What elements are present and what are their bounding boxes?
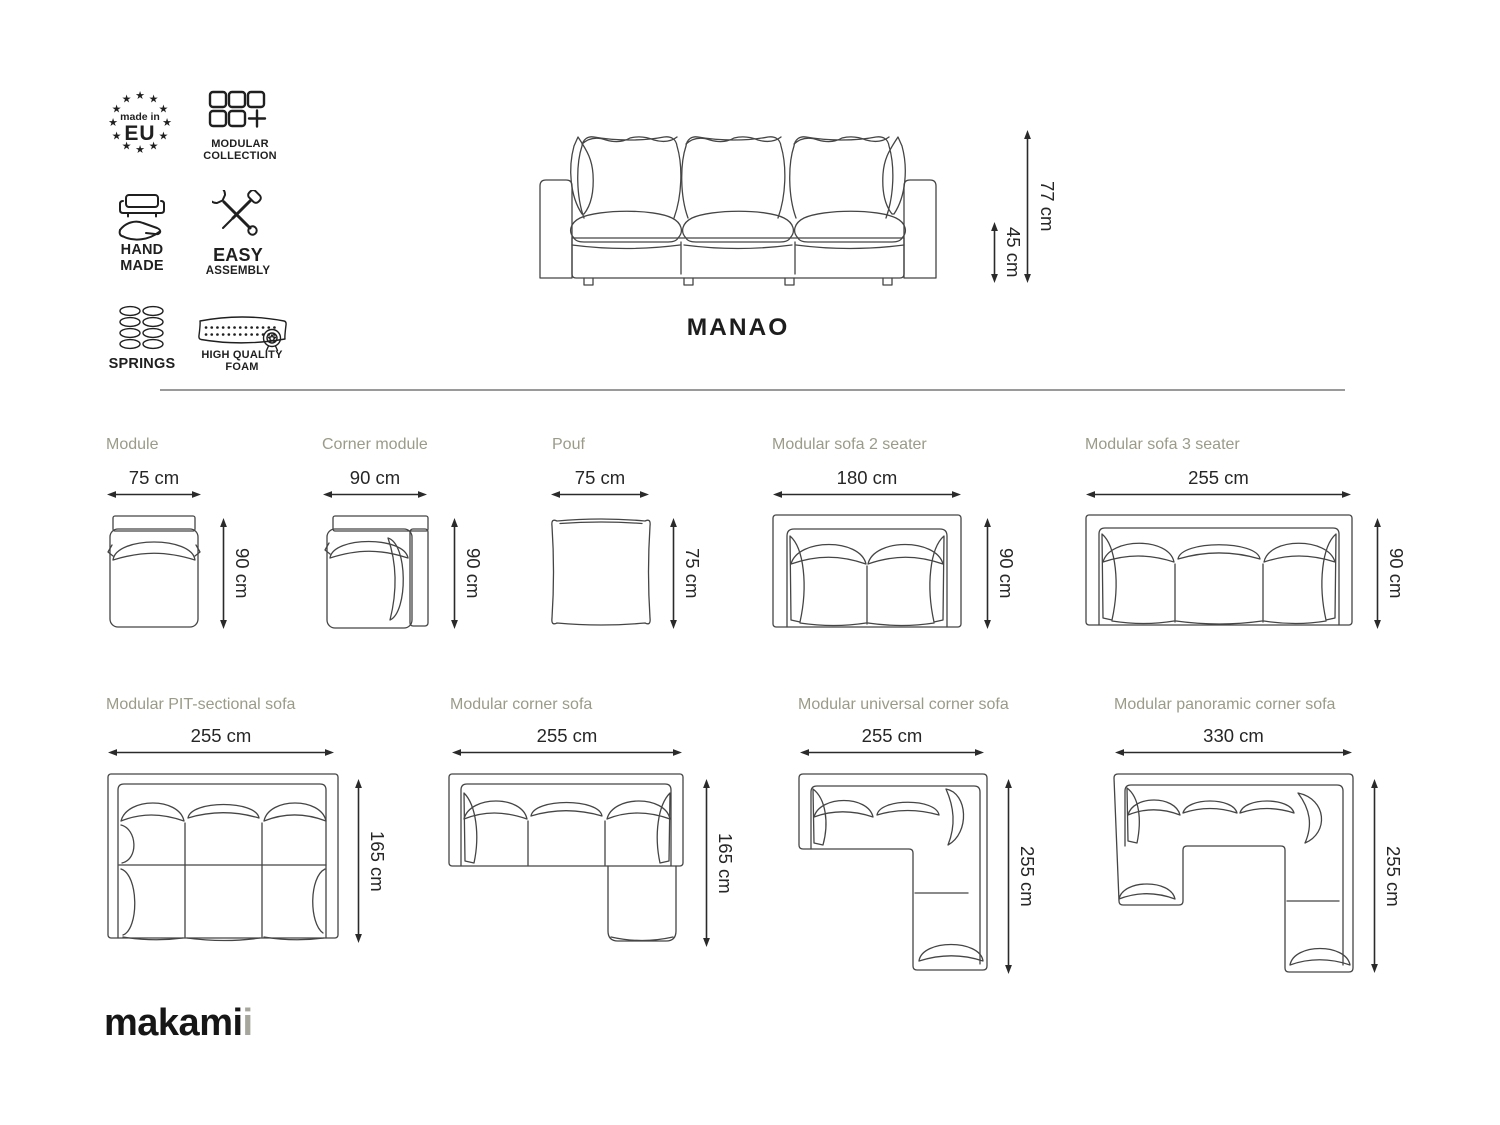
module-top-view-drawing (106, 514, 202, 630)
panoramic-corner-height-arrow (1368, 778, 1381, 974)
corner-module-width-arrow (322, 488, 428, 501)
universal-corner-top-view-drawing (798, 773, 988, 976)
diagram-title-corner-module: Corner module (322, 436, 428, 454)
product-name-title: MANAO (538, 314, 938, 342)
high-quality-foam-label: HIGH QUALITY FOAM (186, 350, 298, 374)
corner-module-height-label: 90 cm (462, 517, 484, 630)
sofa-2-seater-height-arrow (981, 517, 994, 630)
diagram-title-sofa-3-seater: Modular sofa 3 seater (1085, 436, 1240, 454)
hero-seat-height-arrow (988, 221, 1001, 284)
product-spec-sheet: ★ ★ ★ ★ ★ ★ ★ ★ ★ ★ ★ ★ made in EU MODUL… (0, 0, 1500, 1125)
svg-text:★: ★ (162, 116, 172, 129)
module-height-label: 90 cm (231, 517, 253, 630)
sofa-2-seater-height-label: 90 cm (995, 517, 1017, 630)
svg-text:★: ★ (158, 130, 168, 143)
hand-made-label: HAND MADE (104, 243, 180, 274)
corner-module-height-arrow (448, 517, 461, 630)
pit-sectional-width-arrow (107, 746, 335, 759)
panoramic-corner-top-view-drawing (1113, 773, 1354, 978)
diagram-title-sofa-2-seater: Modular sofa 2 seater (772, 436, 927, 454)
pit-sectional-height-label: 165 cm (366, 778, 388, 944)
modular-collection-icon (208, 90, 272, 138)
svg-text:★: ★ (158, 103, 168, 116)
svg-text:★: ★ (135, 89, 145, 102)
module-height-arrow (217, 517, 230, 630)
panoramic-corner-width-label: 330 cm (1114, 725, 1353, 747)
hero-seat-height-label: 45 cm (1002, 221, 1024, 284)
corner-module-top-view-drawing (324, 514, 430, 630)
sofa-3-seater-width-arrow (1085, 488, 1352, 501)
pouf-top-view-drawing (547, 514, 655, 630)
easy-assembly-icon (212, 190, 262, 242)
corner-sofa-width-label: 255 cm (451, 725, 683, 747)
diagram-title-pouf: Pouf (552, 436, 585, 454)
svg-text:★: ★ (112, 130, 122, 143)
diagram-title-pit-sectional: Modular PIT-sectional sofa (106, 696, 295, 714)
svg-text:EU: EU (124, 122, 155, 145)
universal-corner-width-arrow (799, 746, 985, 759)
corner-sofa-height-label: 165 cm (714, 778, 736, 948)
module-width-label: 75 cm (106, 467, 202, 489)
pouf-height-label: 75 cm (681, 517, 703, 630)
sofa-3-seater-height-arrow (1371, 517, 1384, 630)
universal-corner-width-label: 255 cm (799, 725, 985, 747)
hero-sofa-front-view-drawing (538, 120, 938, 288)
pit-sectional-top-view-drawing (107, 773, 339, 945)
easy-assembly-label: EASY ASSEMBLY (194, 246, 282, 278)
diagram-title-panoramic-corner: Modular panoramic corner sofa (1114, 696, 1335, 714)
panoramic-corner-height-label: 255 cm (1382, 778, 1404, 974)
diagram-title-universal-corner: Modular universal corner sofa (798, 696, 1009, 714)
section-divider (160, 389, 1345, 391)
pouf-width-arrow (550, 488, 650, 501)
springs-label: SPRINGS (100, 357, 184, 373)
corner-sofa-height-arrow (700, 778, 713, 948)
sofa-3-seater-width-label: 255 cm (1085, 467, 1352, 489)
universal-corner-height-label: 255 cm (1016, 778, 1038, 975)
brand-logo-main: makami (104, 1002, 243, 1044)
corner-sofa-top-view-drawing (448, 773, 684, 948)
corner-sofa-width-arrow (451, 746, 683, 759)
module-width-arrow (106, 488, 202, 501)
brand-logo: makamii (104, 1002, 253, 1045)
sofa-2-seater-width-arrow (772, 488, 962, 501)
high-quality-foam-icon (196, 308, 288, 354)
made-in-eu-icon: ★ ★ ★ ★ ★ ★ ★ ★ ★ ★ ★ ★ made in EU (104, 86, 176, 158)
springs-icon (118, 304, 166, 352)
sofa-3-seater-top-view-drawing (1085, 514, 1353, 630)
svg-text:★: ★ (149, 93, 159, 106)
pouf-width-label: 75 cm (550, 467, 650, 489)
sofa-3-seater-height-label: 90 cm (1385, 517, 1407, 630)
sofa-2-seater-top-view-drawing (772, 514, 962, 632)
pouf-height-arrow (667, 517, 680, 630)
diagram-title-corner-sofa: Modular corner sofa (450, 696, 592, 714)
corner-module-width-label: 90 cm (322, 467, 428, 489)
hero-overall-height-label: 77 cm (1036, 129, 1058, 284)
pit-sectional-height-arrow (352, 778, 365, 944)
sofa-2-seater-width-label: 180 cm (772, 467, 962, 489)
brand-logo-accent: i (243, 1002, 253, 1044)
svg-text:★: ★ (108, 116, 118, 129)
universal-corner-height-arrow (1002, 778, 1015, 975)
panoramic-corner-width-arrow (1114, 746, 1353, 759)
pit-sectional-width-label: 255 cm (107, 725, 335, 747)
hand-made-icon (116, 192, 168, 244)
modular-collection-label: MODULAR COLLECTION (188, 139, 292, 163)
svg-text:★: ★ (122, 93, 132, 106)
diagram-title-module: Module (106, 436, 158, 454)
